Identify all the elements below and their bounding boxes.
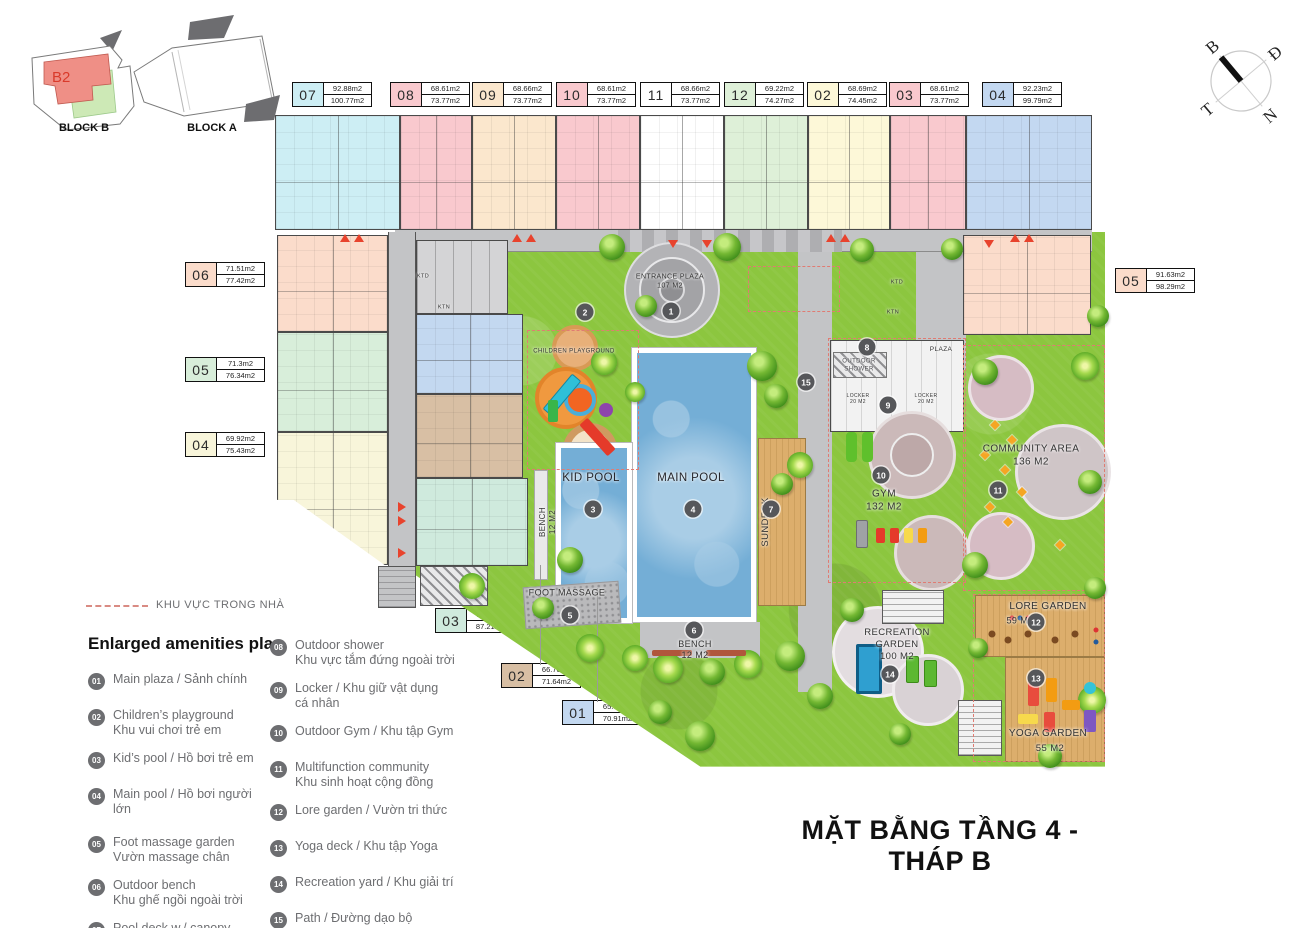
unit-area-gross: 73.77m2 (588, 95, 635, 106)
unit-area-net: 71.51m2 (217, 263, 264, 275)
unit-block-bottom-01 (416, 314, 523, 394)
tree (941, 238, 963, 260)
palm-tree (1071, 352, 1099, 380)
ktd-label: KTD (417, 274, 429, 281)
unit-area-gross: 73.77m2 (504, 95, 551, 106)
ktn-label: KTN (438, 305, 450, 312)
tree (532, 597, 554, 619)
unit-area-gross: 73.77m2 (672, 95, 719, 106)
unit-area-gross: 73.77m2 (921, 95, 968, 106)
kid-pool-label: KID POOL (562, 471, 620, 485)
legend-number: 09 (270, 682, 287, 699)
legend-number: 13 (270, 840, 287, 857)
legend-column-2: 08Outdoor showerKhu vực tắm đứng ngoài t… (270, 638, 460, 928)
legend-number: 10 (270, 725, 287, 742)
bench-seat (706, 650, 746, 656)
locker-label: LOCKER20 M2 (847, 393, 870, 406)
tree (685, 721, 715, 751)
tree (850, 238, 874, 262)
compass-north-label: B (1202, 36, 1223, 58)
palm-tree (622, 645, 648, 671)
stairs (882, 590, 944, 624)
unit-block-08 (400, 115, 472, 230)
unit-block-12 (724, 115, 808, 230)
plan-marker-9: 9 (880, 397, 897, 414)
tree (635, 295, 657, 317)
bench-left-label: BENCH12 M2 (538, 507, 558, 537)
door-marker (354, 234, 364, 242)
legend-item-03: 03Kid’s pool / Hồ bơi trẻ em (88, 751, 268, 769)
unit-area-gross: 73.77m2 (422, 95, 469, 106)
legend-item-01: 01Main plaza / Sảnh chính (88, 672, 268, 690)
yoga-garden-label: YOGA GARDEN (1009, 728, 1087, 741)
unit-number: 03 (890, 83, 921, 106)
tree (764, 384, 788, 408)
compass-west-label: T (1198, 99, 1219, 121)
unit-area-net: 92.88m2 (324, 83, 371, 95)
unit-block-04 (966, 115, 1092, 230)
tree (889, 723, 911, 745)
unit-area-gross: 98.29m2 (1147, 281, 1194, 292)
unit-block-right-05 (963, 235, 1091, 335)
door-marker (984, 240, 994, 248)
indoor-boundary-entrance (748, 266, 840, 312)
unit-number: 06 (186, 263, 217, 286)
palm-tree (459, 573, 485, 599)
unit-block-02 (808, 115, 890, 230)
unit-block-left-05 (277, 332, 388, 432)
door-marker (512, 234, 522, 242)
unit-area-net: 68.61m2 (588, 83, 635, 95)
unit-area-gross: 74.45m2 (839, 95, 886, 106)
unit-block-bottom-02 (416, 394, 523, 478)
door-marker (668, 240, 678, 248)
unit-block-11 (640, 115, 724, 230)
lore-dot-red (1094, 628, 1099, 633)
legend-number: 01 (88, 673, 105, 690)
tree (699, 659, 725, 685)
tree (968, 638, 988, 658)
compass-icon: B Đ N T (1186, 26, 1296, 136)
unit-number: 02 (502, 664, 533, 687)
unit-block-left-04 (277, 432, 388, 565)
unit-block-09 (472, 115, 556, 230)
unit-label-top-08: 0868.61m273.77m2 (390, 82, 470, 107)
play-equipment-slide (548, 400, 558, 422)
unit-number: 11 (641, 83, 672, 106)
tree (1087, 305, 1109, 327)
compass-south-label: N (1259, 105, 1281, 127)
plan-marker-7: 7 (763, 501, 780, 518)
children-playground-label: CHILDREN PLAYGROUND (533, 348, 615, 356)
unit-area-gross: 77.42m2 (217, 275, 264, 286)
legend-item-05: 05Foot massage gardenVườn massage chân (88, 835, 268, 865)
tree (840, 598, 864, 622)
unit-block-10 (556, 115, 640, 230)
door-marker (398, 502, 406, 512)
palm-tree (576, 634, 604, 662)
legend-number: 11 (270, 761, 287, 778)
unit-area-gross: 76.34m2 (217, 370, 264, 381)
unit-area-gross: 74.27m2 (756, 95, 803, 106)
gym-equipment (890, 528, 899, 543)
legend-number: 04 (88, 788, 105, 805)
tree (771, 473, 793, 495)
lore-dot-blue (1094, 640, 1099, 645)
legend-item-09: 09Locker / Khu giữ vật dụngcá nhân (270, 681, 460, 711)
unit-number: 09 (473, 83, 504, 106)
unit-area-net: 69.22m2 (756, 83, 803, 95)
key-plan-shadow-top (188, 15, 234, 40)
door-marker (398, 516, 406, 526)
legend-item-02: 02Children’s playgroundKhu vui chơi trẻ … (88, 708, 268, 738)
legend-item-12: 12Lore garden / Vườn tri thức (270, 803, 460, 821)
plan-marker-2: 2 (577, 304, 594, 321)
unit-number: 04 (186, 433, 217, 456)
unit-number: 08 (391, 83, 422, 106)
plan-marker-8: 8 (859, 339, 876, 356)
plaza-label: PLAZA (930, 346, 953, 354)
indoor-note-dash (86, 605, 148, 607)
legend-item-07: 07Pool deck w./ canopyKhu khởi động có m… (88, 921, 268, 928)
plan-marker-10: 10 (873, 467, 890, 484)
tree (599, 234, 625, 260)
elevator-block (416, 240, 508, 314)
lore-chair (1052, 637, 1059, 644)
unit-number: 03 (436, 609, 467, 632)
door-marker (526, 234, 536, 242)
legend-item-06: 06Outdoor benchKhu ghế ngồi ngoài trời (88, 878, 268, 908)
plan-marker-15: 15 (798, 374, 815, 391)
unit-area-net: 68.69m2 (839, 83, 886, 95)
unit-area-gross: 100.77m2 (324, 95, 371, 106)
unit-block-03 (890, 115, 966, 230)
legend-item-10: 10Outdoor Gym / Khu tập Gym (270, 724, 460, 742)
tree (807, 683, 833, 709)
unit-label-top-07: 0792.88m2100.77m2 (292, 82, 372, 107)
palm-tree (625, 382, 645, 402)
tree (747, 351, 777, 381)
unit-area-net: 68.66m2 (504, 83, 551, 95)
legend-number: 08 (270, 639, 287, 656)
tree (962, 552, 988, 578)
plan-marker-1: 1 (663, 303, 680, 320)
door-marker (702, 240, 712, 248)
unit-block-bottom-03 (416, 478, 528, 566)
legend-number: 03 (88, 752, 105, 769)
unit-area-net: 68.61m2 (422, 83, 469, 95)
unit-label-top-12: 1269.22m274.27m2 (724, 82, 804, 107)
indoor-note-label: KHU VỰC TRONG NHÀ (156, 599, 284, 611)
unit-number: 04 (983, 83, 1014, 106)
yoga-mat (1018, 714, 1038, 724)
floor-plan-canvas: B2 BLOCK B BLOCK A B Đ N T 0792.88m2100.… (0, 0, 1300, 928)
recreation-garden-label: RECREATIONGARDEN100 M2 (864, 627, 930, 663)
unit-area-gross: 99.79m2 (1014, 95, 1061, 106)
unit-number: 12 (725, 83, 756, 106)
legend-item-11: 11Multifunction communityKhu sinh hoạt c… (270, 760, 460, 790)
page-title: MẶT BẰNG TẦNG 4 - THÁP B (760, 815, 1120, 877)
door-marker (840, 234, 850, 242)
community-area-label: COMMUNITY AREA136 M2 (983, 444, 1080, 469)
unit-label-left-04: 0469.92m275.43m2 (185, 432, 265, 457)
plan-marker-14: 14 (882, 666, 899, 683)
unit-number: 01 (563, 701, 594, 724)
lore-chair (1025, 631, 1032, 638)
key-plan-block-a-label: BLOCK A (187, 122, 237, 134)
gym-equipment (876, 528, 885, 543)
ktd-label: KTD (891, 280, 903, 287)
lore-chair (1072, 631, 1079, 638)
unit-area-net: 71.3m2 (217, 358, 264, 370)
unit-label-top-04: 0492.23m299.79m2 (982, 82, 1062, 107)
unit-number: 05 (1116, 269, 1147, 292)
left-wing-stair (378, 566, 416, 608)
lore-chair (989, 631, 996, 638)
legend-number: 02 (88, 709, 105, 726)
legend-number: 05 (88, 836, 105, 853)
bench-bottom-label: BENCH12 M2 (678, 639, 712, 662)
plan-marker-13: 13 (1028, 670, 1045, 687)
unit-block-07 (275, 115, 400, 230)
plan-marker-3: 3 (585, 501, 602, 518)
door-marker (826, 234, 836, 242)
gym-equipment (904, 528, 913, 543)
unit-label-top-03: 0368.61m273.77m2 (889, 82, 969, 107)
locker-label: LOCKER20 M2 (915, 393, 938, 406)
legend-number: 14 (270, 876, 287, 893)
legend-item-04: 04Main pool / Hồ bơi người lớn (88, 787, 268, 817)
unit-label-top-02: 0268.69m274.45m2 (807, 82, 887, 107)
unit-label-left-06: 0671.51m277.42m2 (185, 262, 265, 287)
unit-number: 05 (186, 358, 217, 381)
yoga-mat (1062, 700, 1080, 710)
unit-block-left-06 (277, 235, 388, 332)
unit-number: 02 (808, 83, 839, 106)
legend-number: 07 (88, 922, 105, 928)
gym-label: GYM132 M2 (866, 489, 902, 514)
legend-item-14: 14Recreation yard / Khu giải trí (270, 875, 460, 893)
palm-tree (787, 452, 813, 478)
tree (713, 233, 741, 261)
key-plan-b2-label: B2 (52, 69, 70, 86)
key-plan: B2 BLOCK B BLOCK A (22, 10, 282, 138)
yoga-mat (1046, 678, 1057, 702)
key-plan-block-b-label: BLOCK B (59, 122, 109, 134)
lore-garden-label: LORE GARDEN (1009, 601, 1086, 614)
unit-number: 07 (293, 83, 324, 106)
legend-item-15: 15Path / Đường dạo bộ (270, 911, 460, 928)
plan-marker-12: 12 (1028, 614, 1045, 631)
outdoor-shower-label: OUTDOORSHOWER (842, 359, 875, 374)
unit-label-top-10: 1068.61m273.77m2 (556, 82, 636, 107)
plan-marker-11: 11 (990, 482, 1007, 499)
foot-massage-label: FOOT MASSAGE (529, 587, 606, 598)
yoga-ball (1084, 682, 1096, 694)
door-marker (1010, 234, 1020, 242)
tree (775, 641, 805, 671)
lore-chair (1005, 637, 1012, 644)
door-marker (340, 234, 350, 242)
yoga-garden-area-label: 55 M2 (1036, 743, 1064, 755)
unit-area-net: 92.23m2 (1014, 83, 1061, 95)
plan-marker-6: 6 (686, 622, 703, 639)
plan-marker-4: 4 (685, 501, 702, 518)
gym-mat (846, 432, 857, 462)
legend-column-1: 01Main plaza / Sảnh chính 02Children’s p… (88, 672, 268, 928)
unit-area-net: 91.63m2 (1147, 269, 1194, 281)
unit-label-right-05: 0591.63m298.29m2 (1115, 268, 1195, 293)
tree (1084, 577, 1106, 599)
tree (1078, 470, 1102, 494)
unit-number: 10 (557, 83, 588, 106)
door-marker (398, 548, 406, 558)
tree (557, 547, 583, 573)
legend-number: 06 (88, 879, 105, 896)
legend-number: 15 (270, 912, 287, 928)
legend-heading: Enlarged amenities plan (88, 634, 284, 654)
unit-label-left-05: 0571.3m276.34m2 (185, 357, 265, 382)
ktn-label: KTN (887, 310, 899, 317)
legend-item-08: 08Outdoor showerKhu vực tắm đứng ngoài t… (270, 638, 460, 668)
unit-area-net: 68.66m2 (672, 83, 719, 95)
main-pool-label: MAIN POOL (657, 471, 725, 485)
lounger (924, 660, 937, 687)
plan-marker-5: 5 (562, 607, 579, 624)
unit-area-net: 69.92m2 (217, 433, 264, 445)
legend-number: 12 (270, 804, 287, 821)
gym-equipment (918, 528, 927, 543)
unit-label-top-11: 1168.66m273.77m2 (640, 82, 720, 107)
unit-area-gross: 75.43m2 (217, 445, 264, 456)
tree (972, 359, 998, 385)
door-marker (1024, 234, 1034, 242)
entrance-plaza-label: ENTRANCE PLAZA107 M2 (636, 273, 704, 291)
compass-east-label: Đ (1264, 42, 1286, 64)
tree (648, 700, 672, 724)
gym-treadmill (856, 520, 868, 548)
unit-area-net: 68.61m2 (921, 83, 968, 95)
legend-item-13: 13Yoga deck / Khu tập Yoga (270, 839, 460, 857)
gym-mat (862, 432, 873, 462)
unit-label-top-09: 0968.66m273.77m2 (472, 82, 552, 107)
